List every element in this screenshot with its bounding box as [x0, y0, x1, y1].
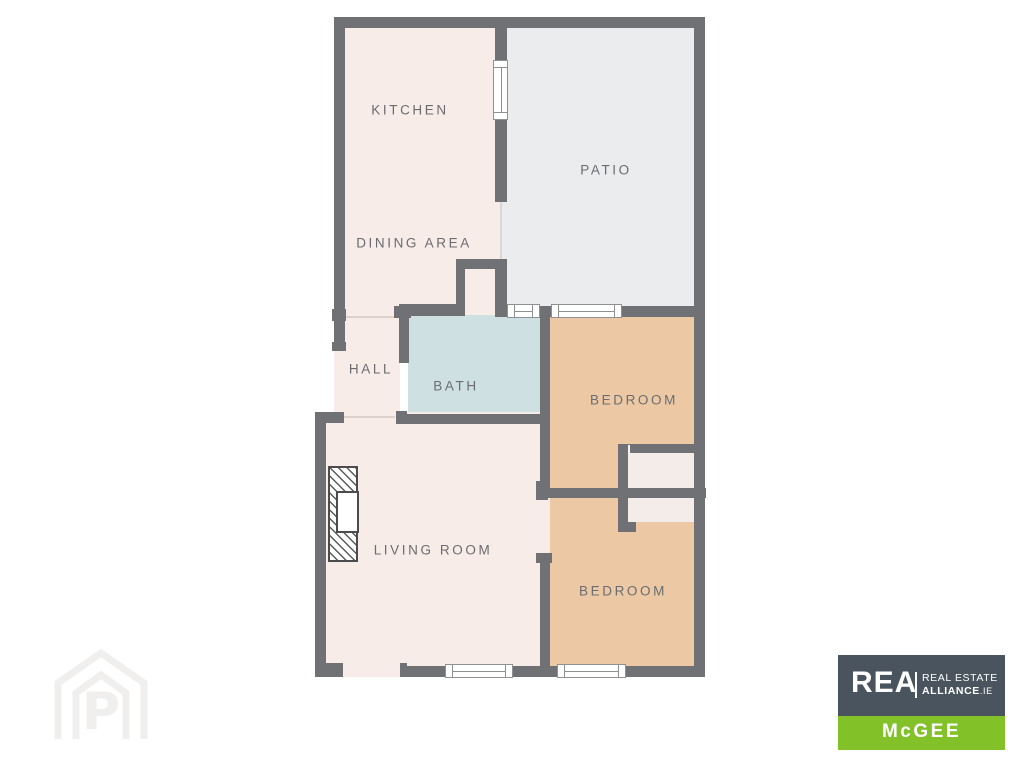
agency-logo-line2: ALLIANCE.IE — [922, 685, 998, 698]
agency-office-name: McGEE — [838, 721, 1005, 743]
window-glass-line — [501, 66, 502, 114]
wall-segment-left-upper — [334, 17, 345, 351]
floor-plan-canvas: KITCHEN PATIO DINING AREA HALL BATH BEDR… — [0, 0, 1033, 775]
wall-segment-bedroom2-left — [540, 555, 550, 666]
window-frame-cap — [505, 665, 512, 677]
window-frame-cap — [558, 665, 565, 677]
wall-segment-bedroom1-left — [540, 317, 550, 498]
house-p-watermark-icon: P — [46, 641, 156, 745]
window-frame-cap — [494, 112, 507, 119]
room-label-living: LIVING ROOM — [374, 543, 493, 558]
wall-segment-left-lower — [315, 412, 326, 677]
wall-segment-bath-bottom — [396, 414, 549, 424]
window-frame-cap — [532, 305, 539, 317]
bedroom2-door-gap — [540, 498, 550, 555]
wall-segment-bottom-2 — [400, 666, 446, 677]
threshold-dining-patio — [500, 202, 502, 260]
room-label-hall: HALL — [349, 362, 393, 377]
agency-logo-line2-text: ALLIANCE — [922, 685, 980, 697]
window-glass-line — [513, 311, 534, 312]
window-frame-cap — [446, 665, 453, 677]
window-frame-cap — [618, 665, 625, 677]
room-label-bath: BATH — [433, 379, 478, 394]
window-bedroom1-top — [551, 304, 622, 318]
living-floor — [326, 412, 540, 666]
window-glass-line — [557, 311, 616, 312]
window-frame-cap — [508, 305, 515, 317]
window-kitchen-patio — [493, 60, 508, 120]
window-frame-cap — [494, 61, 507, 68]
room-label-bedroom1: BEDROOM — [590, 393, 678, 408]
window-glass-line — [563, 671, 620, 672]
window-living-bottom — [445, 664, 513, 678]
agency-logo: REA REAL ESTATE ALLIANCE.IE McGEE — [838, 655, 1005, 750]
threshold-dining-hall — [346, 316, 395, 318]
window-bath-small — [507, 304, 540, 318]
bath-floor — [408, 315, 540, 414]
agency-logo-name: REA — [851, 668, 917, 698]
wall-segment-bath-left — [399, 304, 409, 363]
watermark: P — [46, 641, 156, 750]
wall-segment-top — [334, 17, 705, 28]
agency-logo-line2-suffix: .IE — [980, 686, 993, 696]
window-glass-line — [451, 671, 507, 672]
window-bedroom2-bottom — [557, 664, 626, 678]
wall-segment-hall-living — [315, 412, 344, 423]
agency-logo-green-band: McGEE — [838, 716, 1005, 750]
room-label-bedroom2: BEDROOM — [579, 584, 667, 599]
room-label-kitchen: KITCHEN — [371, 103, 448, 118]
wall-segment-bottom-3 — [511, 666, 559, 677]
fireplace-hearth — [336, 491, 359, 533]
window-frame-cap — [552, 305, 559, 317]
window-frame-cap — [614, 305, 621, 317]
wall-segment-closet1-left — [618, 444, 628, 498]
wall-segment-alcove-left — [456, 259, 465, 305]
alcove-floor — [465, 269, 495, 317]
wall-segment-bottom-4 — [624, 666, 694, 677]
patio-door-opening — [343, 666, 400, 677]
door-jamb-front-door — [332, 342, 346, 351]
room-label-patio: PATIO — [580, 163, 632, 178]
door-jamb-bedrooms-divider — [536, 481, 548, 500]
room-label-dining: DINING AREA — [356, 236, 472, 251]
wall-segment-right — [694, 17, 705, 677]
wall-segment-alcove-right — [495, 269, 507, 306]
watermark-letter: P — [82, 682, 120, 742]
agency-logo-top-panel: REA REAL ESTATE ALLIANCE.IE — [838, 655, 1005, 716]
bedroom1-closet-floor — [628, 453, 694, 488]
threshold-hall-living — [344, 416, 395, 418]
bedroom2-closet-floor — [628, 498, 694, 522]
agency-logo-line1: REAL ESTATE — [922, 672, 998, 685]
agency-logo-divider — [915, 672, 917, 698]
wall-segment-closet2-foot — [618, 522, 636, 532]
wall-segment-bottom-1 — [315, 663, 343, 677]
door-jamb-dining-hall — [332, 309, 346, 321]
